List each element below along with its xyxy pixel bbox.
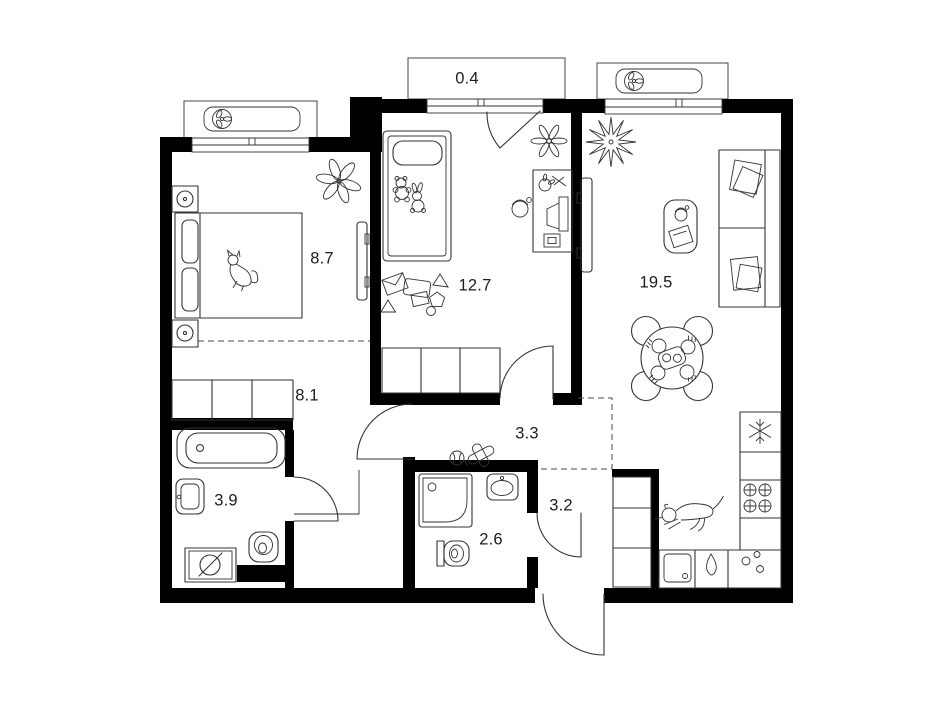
door-shower-room: [537, 513, 581, 557]
balcony-right: [597, 63, 728, 99]
room-area-label-shower-room: 2.6: [479, 531, 503, 550]
door-bedroom-suite: [357, 404, 412, 459]
nightstand-icon: [172, 186, 198, 212]
balcony-middle: [408, 58, 565, 99]
door-entrance: [543, 594, 604, 655]
sink-icon: [487, 474, 518, 500]
keyboard-icon: [544, 234, 560, 247]
nightstand-icon: [172, 320, 198, 347]
fridge-icon: [749, 419, 771, 444]
bathtub-icon: [177, 428, 285, 468]
room-area-label-hall: 8.1: [295, 387, 319, 406]
washing-machine-icon: [185, 548, 236, 582]
window-living: [605, 99, 722, 114]
door-kids-room: [500, 346, 553, 399]
toilet-icon: [249, 532, 278, 562]
tv-icon: [357, 222, 369, 300]
air-conditioner-icon: [625, 72, 644, 91]
floor-plan-drawing: [0, 0, 950, 712]
plant-icon: [316, 158, 363, 204]
room-area-label-bathroom: 3.9: [214, 492, 238, 511]
computer-monitor-icon: [547, 197, 568, 231]
room-area-label-entry: 3.2: [549, 497, 573, 516]
room-area-label-kids-room: 12.7: [459, 277, 492, 296]
pencil-icon: [552, 176, 566, 186]
single-bed-icon: [383, 131, 451, 261]
sofa-icon: [719, 150, 780, 307]
wardrobe-icon: [613, 477, 651, 587]
faucet-drop-icon: [707, 554, 717, 575]
bunny-icon: [411, 182, 426, 212]
balcony-left: [184, 101, 317, 138]
flower-icon: [531, 124, 567, 158]
dining-table-icon: [632, 317, 713, 401]
window-kids: [427, 99, 543, 113]
headphones-icon: [512, 198, 531, 217]
room-area-label-corridor: 3.3: [515, 425, 539, 444]
coffee-table-icon: [664, 200, 697, 253]
kitchen-counter-icon: [659, 412, 781, 588]
floor-plan: 8.7 12.7 19.5 0.4 8.1 3.3 3.9 2.6 3.2: [0, 0, 950, 712]
room-area-label-living-kitchen: 19.5: [640, 274, 673, 293]
dog-icon: [655, 496, 724, 531]
desk-icon: [533, 170, 572, 252]
toys-icon: [381, 273, 448, 316]
toilet-icon: [437, 541, 469, 566]
cat-icon: [228, 251, 258, 292]
air-conditioner-icon: [213, 110, 232, 129]
room-area-label-balcony: 0.4: [455, 70, 479, 89]
wardrobe-icon: [172, 380, 293, 420]
shower-cabin-icon: [419, 474, 472, 527]
teddy-bear-icon: [393, 177, 411, 202]
water-drops-icon: [742, 552, 764, 573]
plant-icon: [586, 117, 636, 167]
sink-icon: [176, 479, 204, 514]
wardrobe-icon: [382, 348, 500, 393]
window-bedroom: [192, 138, 309, 152]
stove-icon: [744, 484, 771, 512]
room-area-label-bedroom: 8.7: [310, 250, 334, 269]
kitchen-sink-icon: [664, 554, 691, 582]
